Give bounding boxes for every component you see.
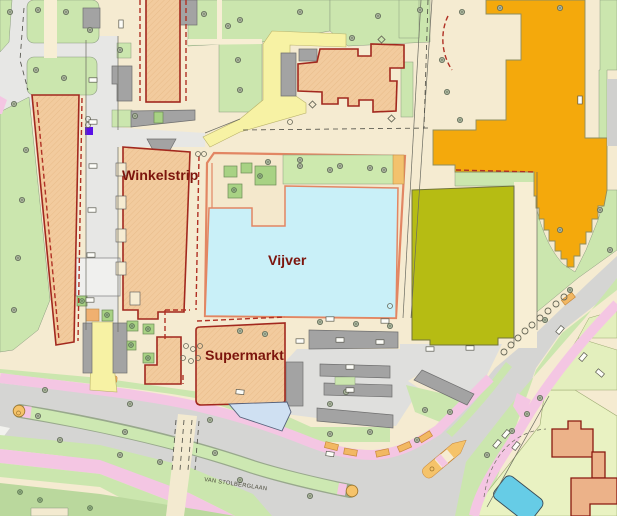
svg-text:Vijver: Vijver (268, 253, 307, 269)
svg-text:Winkelstrip: Winkelstrip (122, 168, 199, 184)
svg-text:Supermarkt: Supermarkt (205, 348, 284, 364)
